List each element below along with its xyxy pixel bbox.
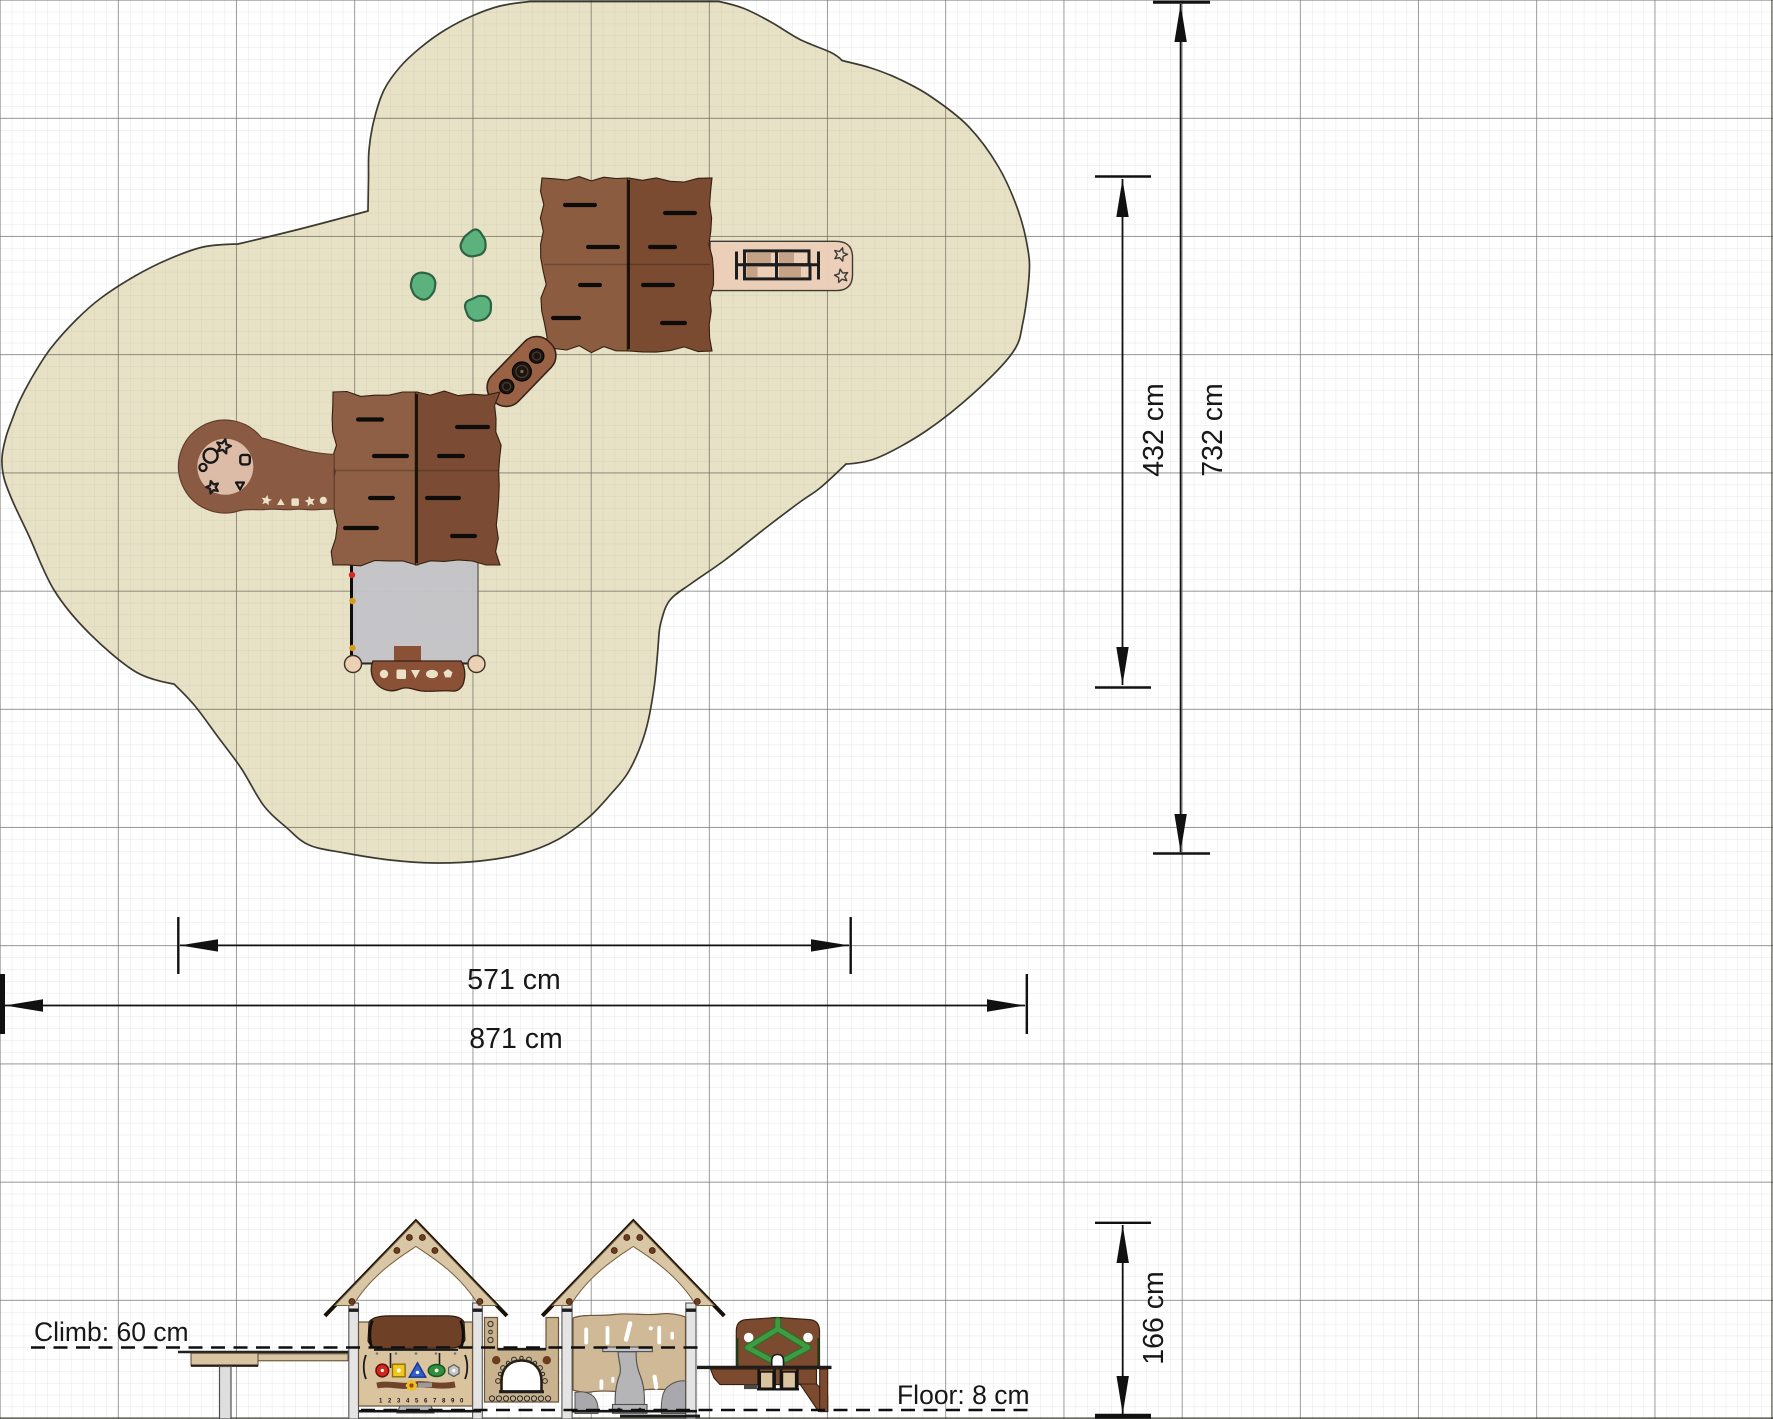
- svg-text:166 cm: 166 cm: [1138, 1271, 1170, 1364]
- svg-text:732 cm: 732 cm: [1197, 383, 1229, 476]
- svg-text:Floor: 8 cm: Floor: 8 cm: [897, 1380, 1030, 1410]
- svg-text:871 cm: 871 cm: [469, 1023, 562, 1055]
- svg-text:571 cm: 571 cm: [467, 964, 560, 996]
- svg-text:432 cm: 432 cm: [1138, 383, 1170, 476]
- svg-text:1 2 3 4 5 6 7 8 9 0: 1 2 3 4 5 6 7 8 9 0: [379, 1399, 465, 1405]
- svg-text:Climb: 60 cm: Climb: 60 cm: [34, 1317, 189, 1347]
